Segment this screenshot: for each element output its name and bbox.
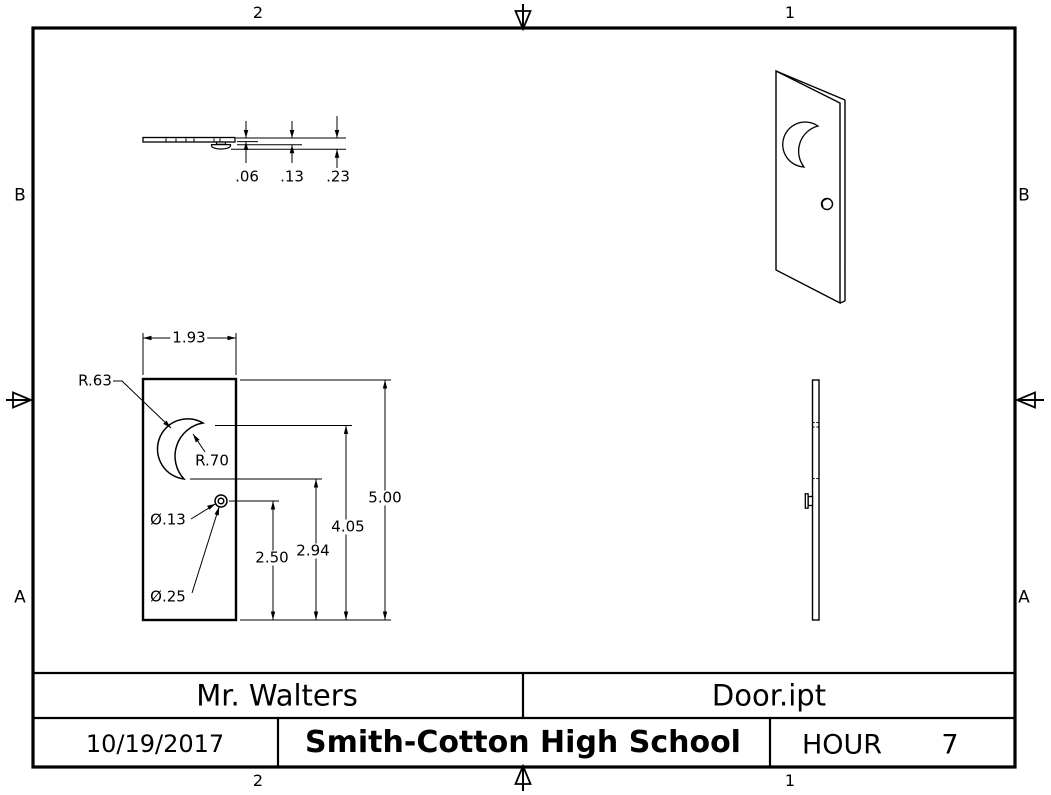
dim-thickness: .06 (235, 170, 259, 185)
dim-width: 1.93 (170, 331, 207, 346)
zone-label-bottom-right: 1 (785, 773, 795, 789)
top-view-knob (212, 142, 231, 149)
zone-label-right-lower: A (1018, 590, 1030, 607)
title-block-hour-label: HOUR (802, 732, 882, 759)
dim-knob-diameter: Ø.25 (150, 590, 186, 605)
dim-knob-center-height: 2.50 (253, 551, 290, 566)
zone-label-left-upper: B (14, 188, 26, 205)
dim-moon-top-height: 4.05 (329, 520, 366, 535)
title-block-teacher: Mr. Walters (196, 682, 358, 711)
zone-label-top-right: 1 (785, 5, 795, 21)
dim-hole-diameter: Ø.13 (150, 513, 186, 528)
drawing-linework (0, 0, 1051, 795)
side-view-knob (805, 494, 812, 508)
zone-label-right-upper: B (1018, 188, 1030, 205)
dim-moon-inner-radius: R.70 (195, 454, 229, 469)
iso-knob (822, 199, 833, 210)
dim-moon-outer-radius: R.63 (78, 374, 112, 389)
drawing-sheet: 2 1 2 1 B A B A .06 .13 .23 1.93 R.63 R.… (0, 0, 1051, 795)
title-block-date: 10/19/2017 (86, 732, 224, 756)
isometric-view (776, 71, 845, 303)
side-view (805, 380, 819, 620)
front-view (113, 333, 391, 620)
dim-knob-tip: .23 (326, 170, 350, 185)
title-block-hour-value: 7 (941, 732, 958, 759)
top-view (143, 116, 346, 168)
dim-knob-base: .13 (280, 170, 304, 185)
title-block-school: Smith-Cotton High School (305, 728, 741, 758)
zone-label-bottom-left: 2 (253, 773, 263, 789)
zone-label-left-lower: A (14, 590, 26, 607)
zone-label-top-left: 2 (253, 5, 263, 21)
knob-hole-circle (218, 498, 224, 504)
dim-moon-bottom-height: 2.94 (294, 544, 331, 559)
title-block-file-name: Door.ipt (712, 682, 826, 711)
dim-total-height: 5.00 (366, 491, 403, 506)
